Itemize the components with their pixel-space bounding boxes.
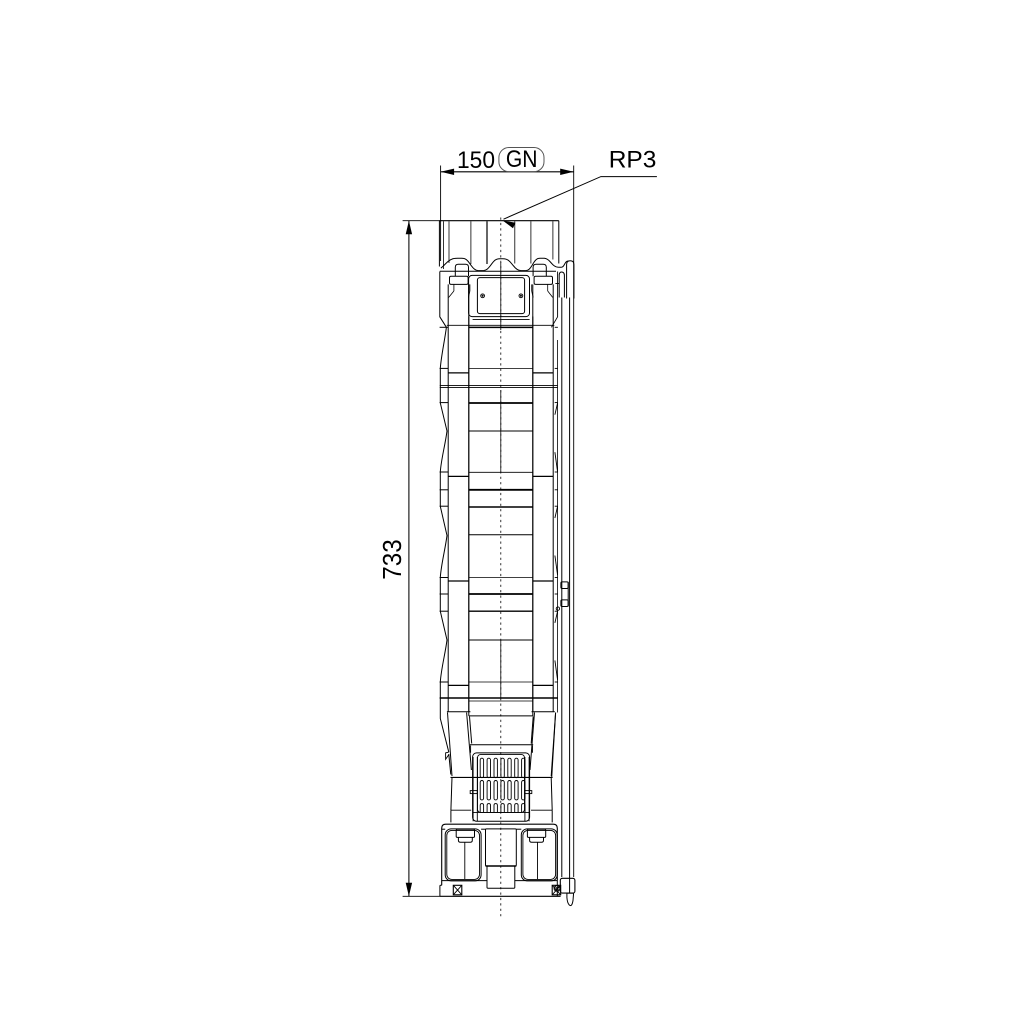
svg-text:150: 150 bbox=[457, 147, 495, 174]
svg-text:GN: GN bbox=[506, 146, 538, 173]
svg-text:733: 733 bbox=[379, 539, 407, 580]
svg-text:RP3: RP3 bbox=[609, 146, 657, 173]
